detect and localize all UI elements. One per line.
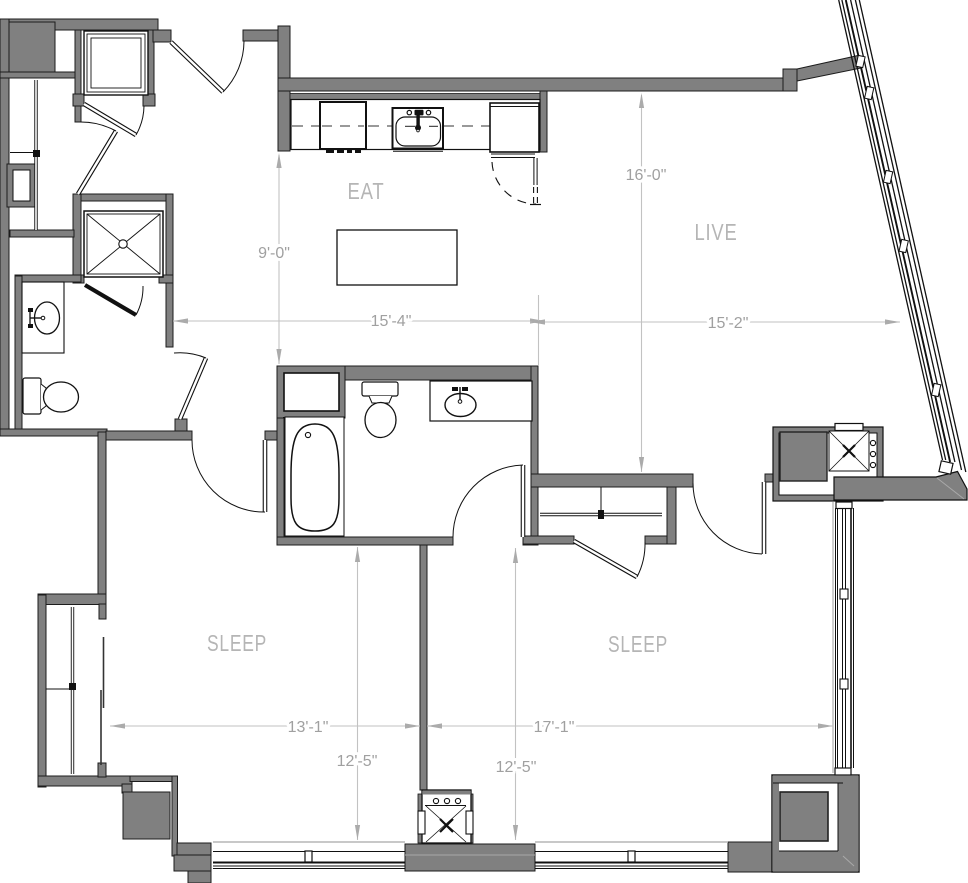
svg-text:16'-0": 16'-0" (626, 167, 667, 184)
svg-text:SLEEP: SLEEP (207, 630, 267, 656)
svg-text:17'-1": 17'-1" (534, 719, 575, 736)
svg-text:SLEEP: SLEEP (608, 631, 668, 657)
svg-text:12'-5": 12'-5" (337, 753, 378, 770)
svg-text:15'-4": 15'-4" (371, 313, 412, 330)
svg-text:EAT: EAT (348, 178, 385, 204)
svg-text:9'-0": 9'-0" (258, 245, 290, 262)
svg-text:12'-5": 12'-5" (496, 759, 537, 776)
svg-text:15'-2": 15'-2" (708, 315, 749, 332)
svg-text:LIVE: LIVE (695, 219, 738, 245)
svg-text:13'-1": 13'-1" (288, 719, 329, 736)
